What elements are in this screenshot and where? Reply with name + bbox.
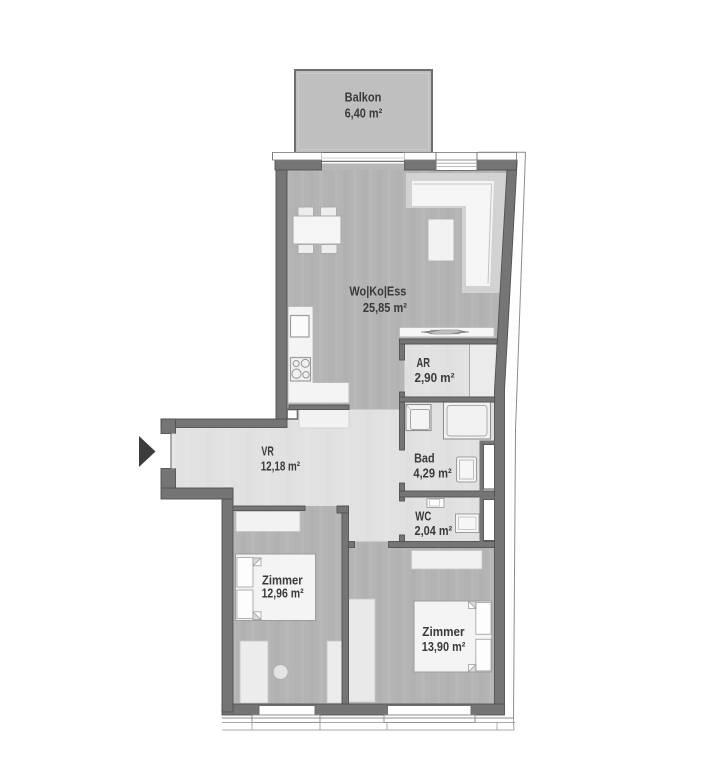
svg-text:VR: VR: [261, 444, 274, 459]
svg-text:AR: AR: [417, 355, 431, 370]
svg-text:4,29 m²: 4,29 m²: [413, 465, 452, 480]
svg-text:Balkon: Balkon: [345, 89, 382, 104]
svg-text:13,90 m²: 13,90 m²: [422, 639, 466, 654]
svg-text:6,40 m²: 6,40 m²: [345, 106, 383, 121]
svg-text:25,85 m²: 25,85 m²: [363, 300, 408, 315]
svg-text:2,90 m²: 2,90 m²: [415, 370, 456, 385]
svg-text:Wo|Ko|Ess: Wo|Ko|Ess: [349, 284, 406, 299]
svg-text:12,96 m²: 12,96 m²: [262, 585, 305, 600]
svg-text:WC: WC: [415, 509, 431, 524]
svg-text:Zimmer: Zimmer: [422, 624, 464, 639]
svg-text:12,18 m²: 12,18 m²: [261, 458, 301, 473]
svg-text:2,04 m²: 2,04 m²: [415, 523, 453, 538]
svg-text:Bad: Bad: [414, 450, 435, 465]
